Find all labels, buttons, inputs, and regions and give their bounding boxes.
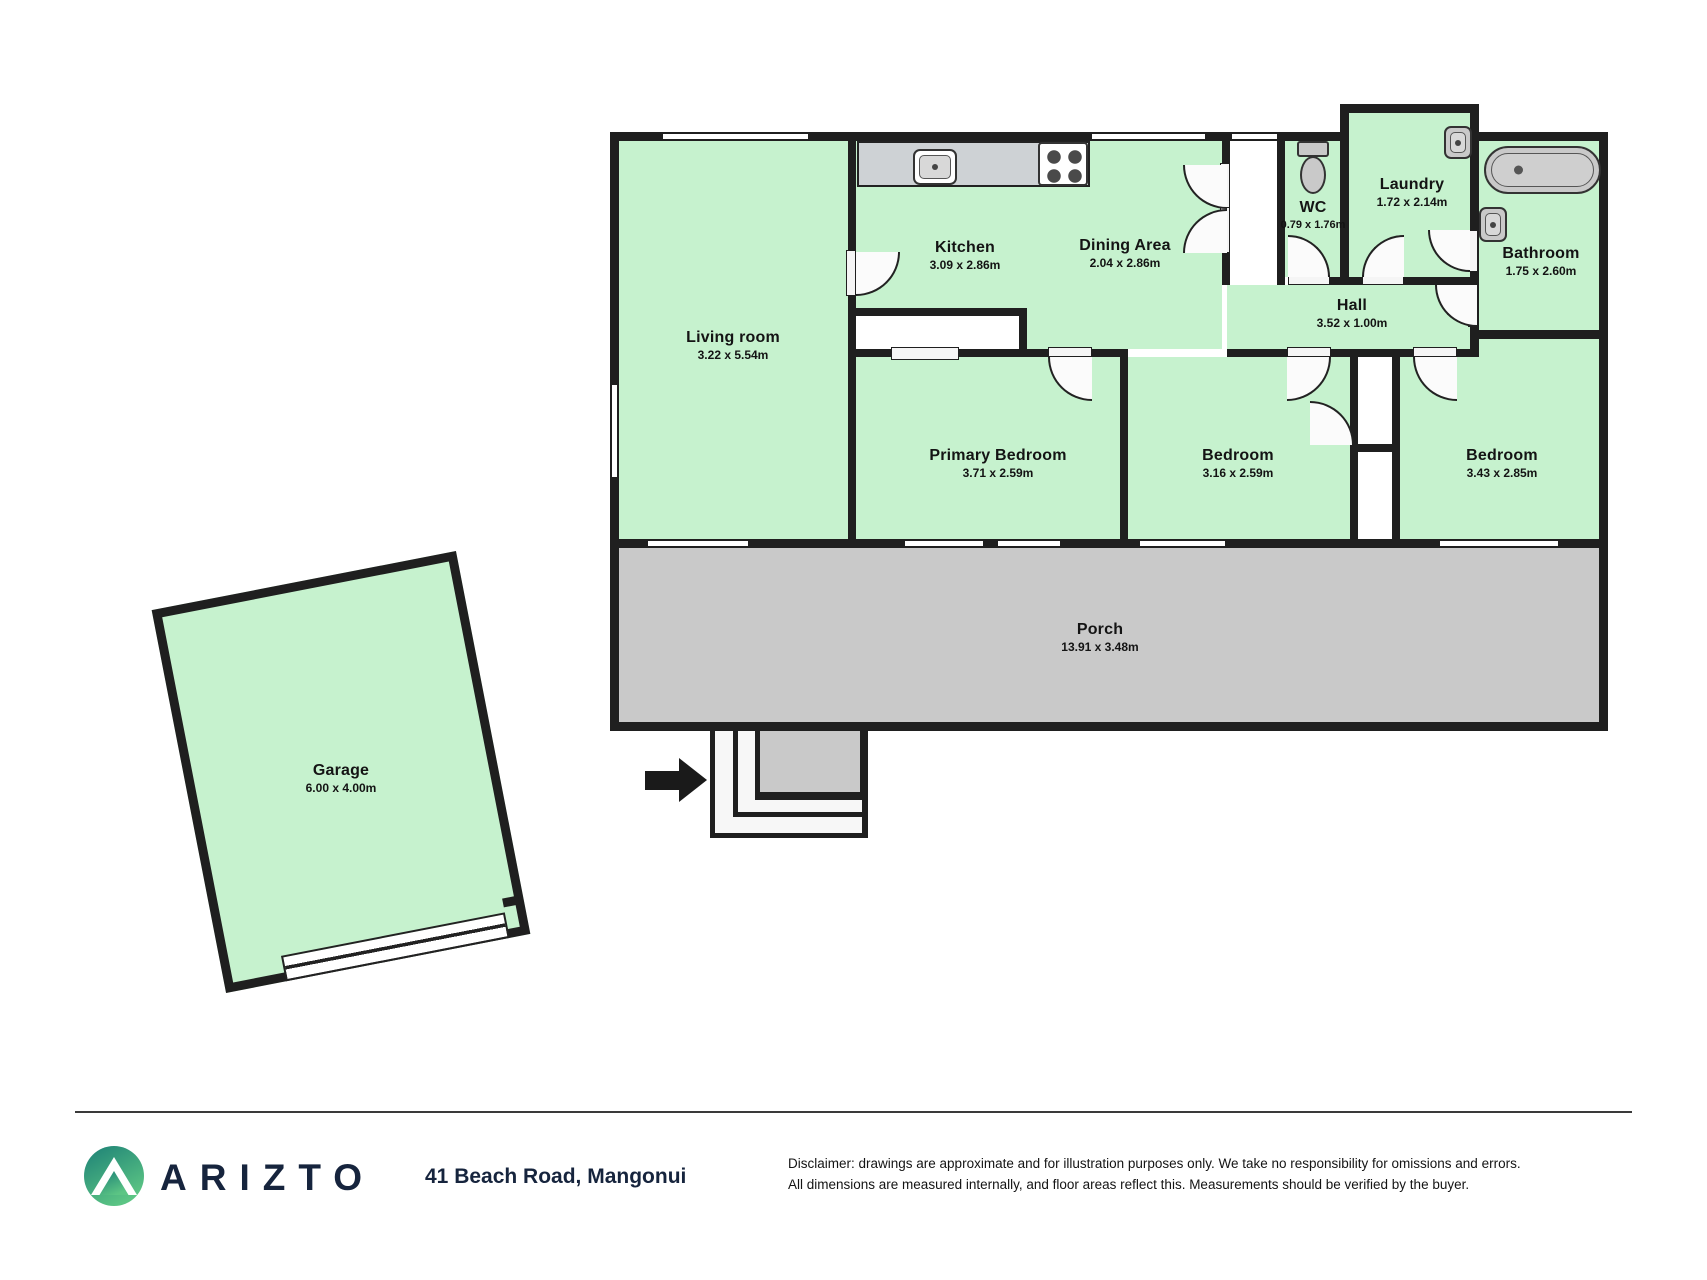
wall <box>1470 330 1608 339</box>
step <box>715 817 862 833</box>
garage-door <box>281 912 510 981</box>
room-dims: 0.79 x 1.76m <box>1281 218 1346 233</box>
wall <box>1331 349 1400 357</box>
room-name: Primary Bedroom <box>929 447 1066 465</box>
room-dims: 3.43 x 2.85m <box>1466 466 1538 481</box>
bathroom-sink-icon <box>1479 207 1507 242</box>
door-leaf <box>1048 347 1092 357</box>
entry-arrow-icon <box>645 771 679 790</box>
room-name: Bedroom <box>1466 447 1538 465</box>
room-name: Bedroom <box>1202 447 1274 465</box>
wall <box>1340 104 1349 285</box>
toilet-bowl-icon <box>1300 156 1326 194</box>
wall <box>1092 349 1128 357</box>
room-dims: 3.16 x 2.59m <box>1202 466 1274 481</box>
wall <box>1330 277 1362 285</box>
arizto-logo-icon <box>84 1146 144 1206</box>
disclaimer-line-2: All dimensions are measured internally, … <box>788 1174 1608 1195</box>
room-name: Porch <box>1061 621 1138 639</box>
room-name: Kitchen <box>930 239 1001 257</box>
room-name: Laundry <box>1377 176 1448 194</box>
room-name: WC <box>1281 199 1346 217</box>
door-leaf <box>846 250 856 296</box>
room-name: Dining Area <box>1079 237 1170 255</box>
wall <box>848 349 893 357</box>
room-dims: 13.91 x 3.48m <box>1061 640 1138 655</box>
room-name: Living room <box>686 329 780 347</box>
room-label-bedroom-mid: Bedroom 3.16 x 2.59m <box>1202 447 1274 481</box>
porch-landing <box>760 731 860 792</box>
room-name: Garage <box>306 762 377 780</box>
laundry-sink-icon <box>1444 126 1472 159</box>
door-leaf <box>1287 347 1331 357</box>
room-label-bedroom-right: Bedroom 3.43 x 2.85m <box>1466 447 1538 481</box>
bathtub-icon <box>1484 146 1601 194</box>
mountain-icon <box>84 1146 144 1206</box>
room-dims: 3.71 x 2.59m <box>929 466 1066 481</box>
window <box>905 539 983 548</box>
disclaimer-line-1: Disclaimer: drawings are approximate and… <box>788 1153 1608 1174</box>
room-dims: 1.72 x 2.14m <box>1377 195 1448 210</box>
room-label-primary-bedroom: Primary Bedroom 3.71 x 2.59m <box>929 447 1066 481</box>
room-label-garage: Garage 6.00 x 4.00m <box>306 762 377 796</box>
room-dims: 3.09 x 2.86m <box>930 258 1001 273</box>
wall <box>1340 104 1479 113</box>
wall <box>1404 277 1477 285</box>
wall <box>1350 444 1400 452</box>
cupboard-opening <box>891 347 959 360</box>
wall <box>957 349 1048 357</box>
wall <box>848 137 856 539</box>
window <box>663 132 808 141</box>
wall <box>1457 349 1479 357</box>
wall <box>1479 132 1608 141</box>
window <box>610 385 619 477</box>
footer-divider <box>75 1111 1632 1113</box>
front-door-opening <box>1232 132 1277 141</box>
cupboard <box>856 316 1019 349</box>
step <box>738 800 862 812</box>
room-label-wc: WC 0.79 x 1.76m <box>1281 199 1346 233</box>
wall <box>848 308 1027 316</box>
disclaimer-text: Disclaimer: drawings are approximate and… <box>788 1153 1608 1195</box>
toilet-icon <box>1297 141 1329 157</box>
room-label-kitchen: Kitchen 3.09 x 2.86m <box>930 239 1001 273</box>
brand-wordmark: ARIZTO <box>160 1157 375 1199</box>
window <box>648 539 748 548</box>
room-dims: 3.22 x 5.54m <box>686 348 780 363</box>
door-leaf <box>1413 347 1457 357</box>
room-label-living-room: Living room 3.22 x 5.54m <box>686 329 780 363</box>
room-dims: 2.04 x 2.86m <box>1079 256 1170 271</box>
window <box>1092 132 1205 141</box>
kitchen-sink-icon <box>913 149 957 185</box>
room-label-hall: Hall 3.52 x 1.00m <box>1317 297 1388 331</box>
room-label-porch: Porch 13.91 x 3.48m <box>1061 621 1138 655</box>
window <box>998 539 1060 548</box>
room-name: Bathroom <box>1502 245 1579 263</box>
entry-arrow-head-icon <box>679 758 707 802</box>
wall <box>1120 349 1128 539</box>
room-name: Hall <box>1317 297 1388 315</box>
room-dims: 3.52 x 1.00m <box>1317 316 1388 331</box>
wall <box>1400 349 1413 357</box>
window <box>1440 539 1558 548</box>
wall <box>1599 132 1608 731</box>
property-address: 41 Beach Road, Mangonui <box>425 1165 686 1189</box>
room-dims: 1.75 x 2.60m <box>1502 264 1579 279</box>
garage-door-return-wall <box>502 896 519 908</box>
room-label-dining-area: Dining Area 2.04 x 2.86m <box>1079 237 1170 271</box>
room-dims: 6.00 x 4.00m <box>306 781 377 796</box>
stove-icon <box>1038 142 1088 186</box>
wall <box>1227 349 1287 357</box>
window <box>1140 539 1225 548</box>
room-label-laundry: Laundry 1.72 x 2.14m <box>1377 176 1448 210</box>
room-label-bathroom: Bathroom 1.75 x 2.60m <box>1502 245 1579 279</box>
entry-corridor <box>1230 141 1277 285</box>
